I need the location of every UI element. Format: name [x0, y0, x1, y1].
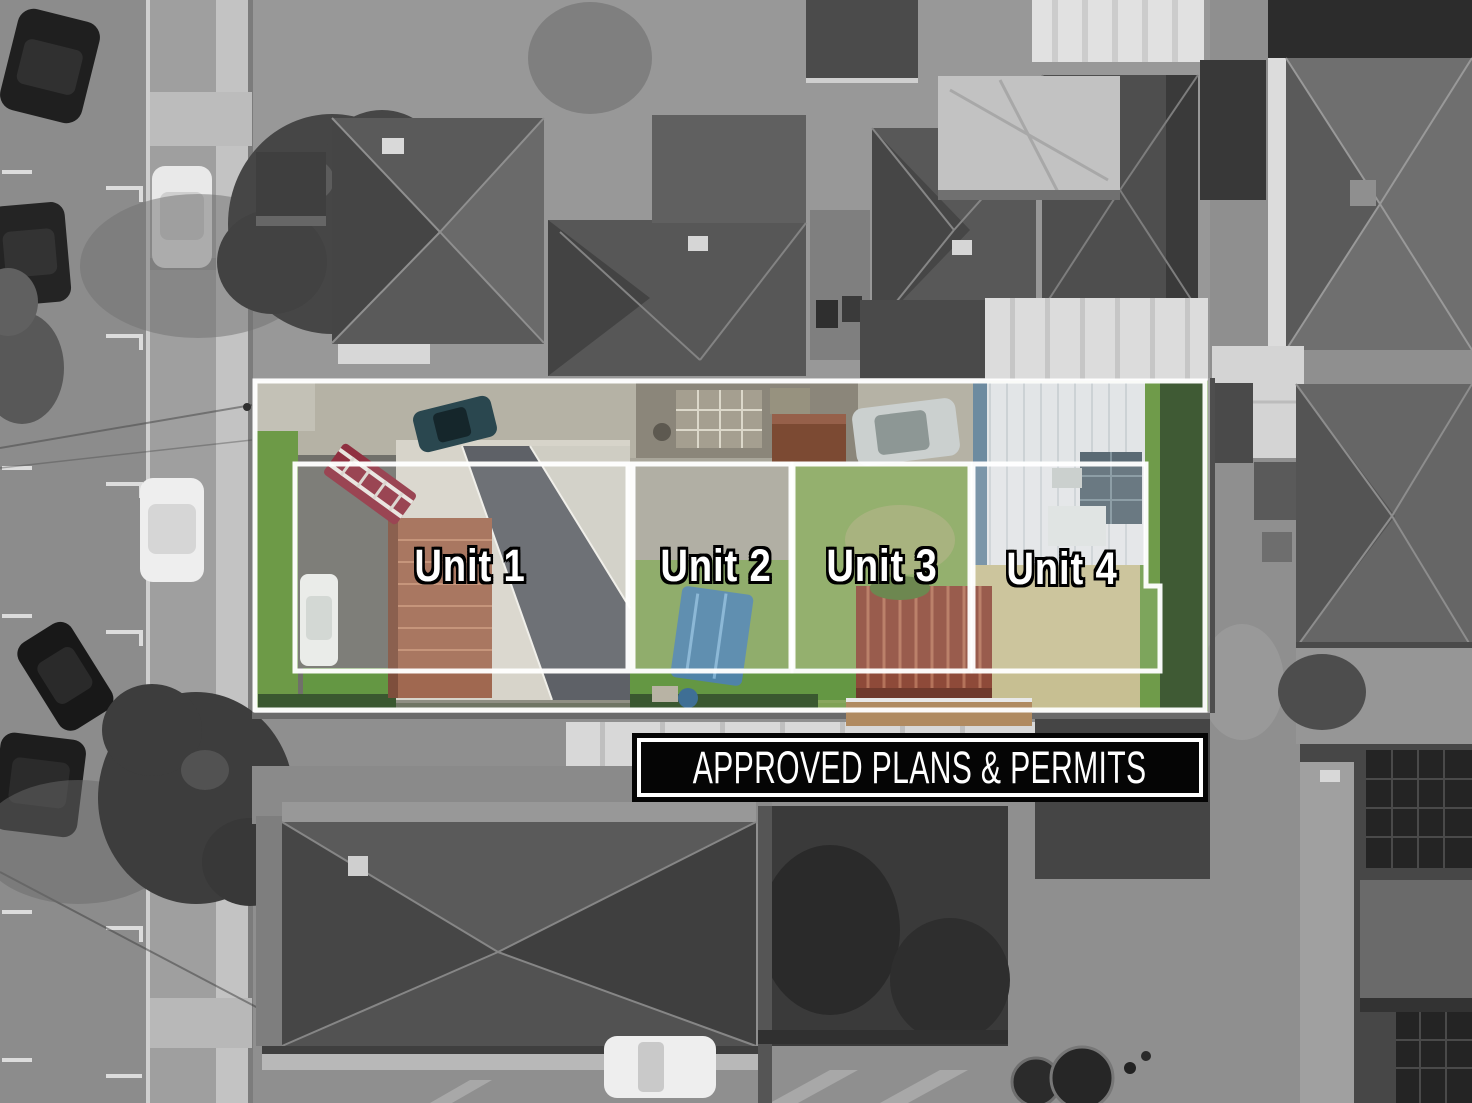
banner-text: APPROVED PLANS & PERMITS	[693, 742, 1147, 794]
unit-4-label: Unit 4	[1006, 543, 1117, 595]
unit-2-label: Unit 2	[660, 540, 771, 592]
approved-plans-banner: APPROVED PLANS & PERMITS	[632, 733, 1208, 802]
unit-1-label: Unit 1	[414, 540, 525, 592]
aerial-photo: Unit 1 Unit 2 Unit 3 Unit 4 APPROVED PLA…	[0, 0, 1472, 1103]
unit-3-label: Unit 3	[826, 540, 937, 592]
road-left	[0, 0, 258, 1103]
